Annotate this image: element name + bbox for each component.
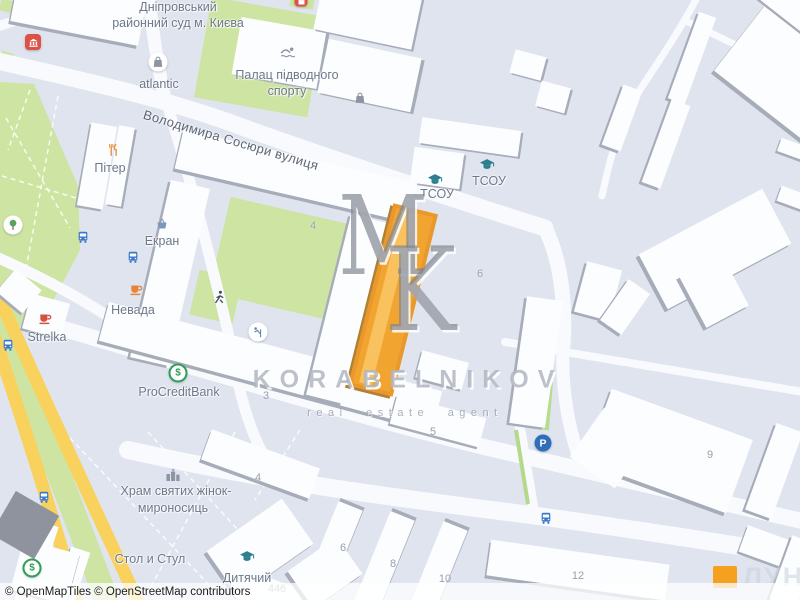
place-label: мироносиць: [138, 501, 208, 515]
map-canvas[interactable]: $$PДніпровськийрайонний суд м. Києваatla…: [0, 0, 800, 600]
place-label: Храм святих жінок-: [121, 484, 232, 498]
shopping-bag-icon[interactable]: [149, 53, 168, 72]
playground-runner-icon[interactable]: [212, 290, 226, 304]
shop-basket-icon[interactable]: [155, 218, 169, 231]
restaurant-icon[interactable]: [106, 143, 120, 157]
attribution-bar[interactable]: © OpenMapTiles © OpenStreetMap contribut…: [0, 583, 800, 600]
place-label: ТСОУ: [472, 174, 506, 188]
swimmer-icon[interactable]: [280, 46, 296, 58]
place-label: Strelka: [28, 330, 67, 344]
coffee-cup-icon[interactable]: [129, 282, 143, 296]
house-number: 8: [390, 558, 396, 570]
coffee-cup-icon[interactable]: [38, 311, 52, 325]
bus-icon[interactable]: [77, 231, 90, 244]
house-number: 9: [707, 449, 713, 461]
place-label: спорту: [268, 84, 307, 98]
house-number: 3: [263, 390, 269, 402]
place-label: Дніпровський: [139, 0, 217, 14]
bus-icon[interactable]: [127, 251, 140, 264]
bank-dollar-icon[interactable]: $: [169, 364, 188, 383]
house-number: 5: [430, 426, 436, 438]
church-icon[interactable]: [165, 467, 182, 481]
map-base-layer: [0, 0, 800, 600]
playground-slide-icon[interactable]: [249, 323, 268, 342]
house-number: 6: [340, 542, 346, 554]
house-number: 12: [572, 570, 584, 582]
courthouse-icon[interactable]: [25, 34, 41, 50]
place-label: Палац підводного: [235, 68, 338, 82]
shop-icon[interactable]: [295, 0, 308, 7]
bus-icon[interactable]: [38, 491, 51, 504]
shopping-bag-icon[interactable]: [354, 92, 367, 105]
place-label: Екран: [145, 234, 180, 248]
tree-icon[interactable]: [4, 216, 23, 235]
parking-icon[interactable]: P: [535, 435, 552, 452]
attribution-text[interactable]: © OpenMapTiles © OpenStreetMap contribut…: [5, 586, 250, 598]
svg-text:P: P: [540, 439, 547, 449]
house-number: 6: [477, 268, 483, 280]
graduation-cap-icon[interactable]: [479, 158, 496, 172]
place-label: ProCreditBank: [138, 385, 219, 399]
place-label: ТСОУ: [420, 187, 454, 201]
house-number: 4: [310, 220, 316, 232]
place-label: Невада: [111, 303, 155, 317]
place-label: atlantic: [139, 77, 179, 91]
bank-dollar-icon[interactable]: $: [23, 559, 42, 578]
place-label: районний суд м. Києва: [112, 16, 244, 30]
bus-icon[interactable]: [540, 512, 553, 525]
graduation-cap-icon[interactable]: [427, 173, 444, 187]
place-label: Пітер: [94, 161, 125, 175]
bus-icon[interactable]: [2, 339, 15, 352]
place-label: Стол и Стул: [115, 552, 186, 566]
graduation-cap-icon[interactable]: [239, 550, 256, 564]
house-number: 4: [255, 472, 261, 484]
